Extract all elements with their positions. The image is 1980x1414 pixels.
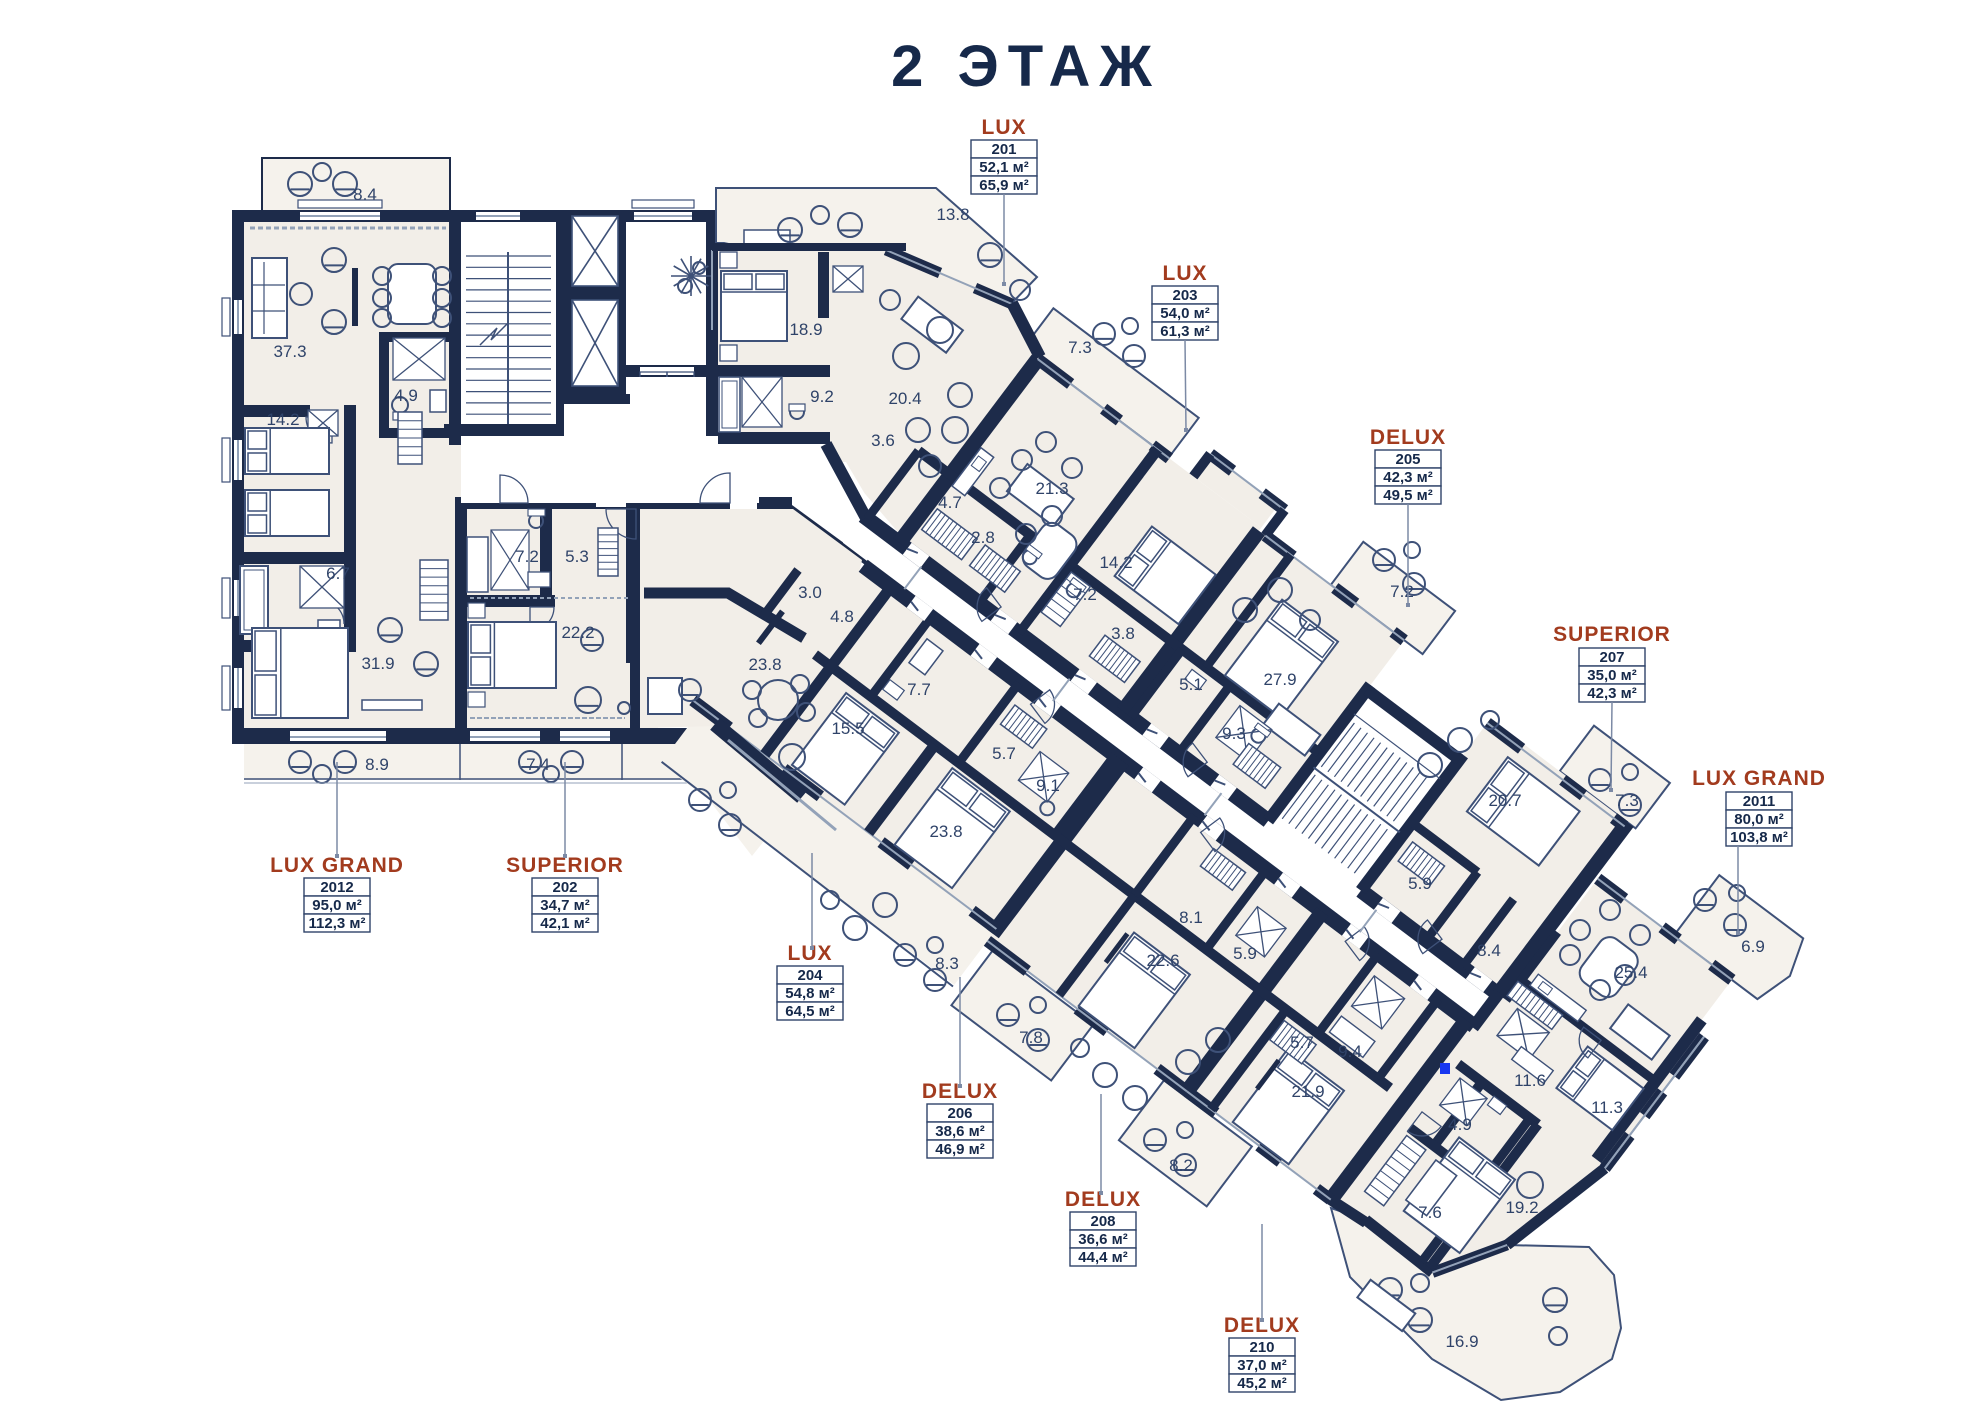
svg-text:DELUX: DELUX (1370, 426, 1446, 449)
svg-text:21.3: 21.3 (1035, 479, 1068, 498)
svg-text:7.8: 7.8 (1019, 1028, 1043, 1047)
svg-text:22.2: 22.2 (561, 623, 594, 642)
svg-text:19.2: 19.2 (1505, 1198, 1538, 1217)
svg-text:42,3 м²: 42,3 м² (1383, 469, 1432, 486)
svg-text:37.3: 37.3 (273, 342, 306, 361)
svg-text:6.7: 6.7 (326, 564, 350, 583)
svg-text:103,8 м²: 103,8 м² (1730, 829, 1788, 846)
svg-text:20.7: 20.7 (1488, 791, 1521, 810)
svg-text:8.9: 8.9 (365, 755, 389, 774)
svg-text:44,4 м²: 44,4 м² (1078, 1249, 1127, 1266)
svg-text:11.3: 11.3 (1591, 1098, 1623, 1117)
svg-text:16.9: 16.9 (1445, 1332, 1478, 1351)
svg-text:201: 201 (991, 141, 1016, 158)
svg-text:42,3 м²: 42,3 м² (1587, 685, 1636, 702)
svg-text:SUPERIOR: SUPERIOR (1553, 623, 1671, 646)
svg-text:23.8: 23.8 (929, 822, 962, 841)
svg-text:31.9: 31.9 (361, 654, 394, 673)
svg-text:11.6: 11.6 (1514, 1071, 1546, 1090)
svg-text:7.4: 7.4 (526, 755, 550, 774)
svg-text:3.0: 3.0 (798, 583, 822, 602)
svg-text:210: 210 (1249, 1339, 1274, 1356)
svg-text:5.3: 5.3 (565, 547, 589, 566)
svg-text:2.8: 2.8 (971, 528, 995, 547)
svg-text:208: 208 (1090, 1213, 1115, 1230)
svg-text:25.4: 25.4 (1614, 963, 1647, 982)
svg-text:9.2: 9.2 (810, 387, 834, 406)
svg-text:4.9: 4.9 (1448, 1115, 1472, 1134)
svg-text:27.9: 27.9 (1263, 670, 1296, 689)
svg-text:7.3: 7.3 (1068, 338, 1092, 357)
svg-text:7.2: 7.2 (515, 547, 539, 566)
svg-text:18.9: 18.9 (789, 320, 822, 339)
svg-text:20.4: 20.4 (888, 389, 921, 408)
svg-text:5.1: 5.1 (1179, 675, 1203, 694)
svg-text:38,6 м²: 38,6 м² (935, 1123, 984, 1140)
svg-text:205: 205 (1395, 451, 1420, 468)
svg-text:37,0 м²: 37,0 м² (1237, 1357, 1286, 1374)
svg-text:9.4: 9.4 (1338, 1042, 1362, 1061)
svg-text:7.3: 7.3 (1615, 791, 1639, 810)
svg-text:14.2: 14.2 (266, 410, 299, 429)
svg-text:5.7: 5.7 (992, 744, 1016, 763)
svg-text:202: 202 (552, 879, 577, 896)
svg-text:203: 203 (1172, 287, 1197, 304)
svg-text:9.3: 9.3 (1222, 724, 1246, 743)
svg-text:4.7: 4.7 (938, 493, 962, 512)
svg-text:42,1 м²: 42,1 м² (540, 915, 589, 932)
svg-text:5.9: 5.9 (1233, 944, 1257, 963)
svg-text:2012: 2012 (320, 879, 353, 896)
svg-text:65,9 м²: 65,9 м² (979, 177, 1028, 194)
svg-text:LUX: LUX (788, 942, 833, 965)
svg-text:61,3 м²: 61,3 м² (1160, 323, 1209, 340)
svg-text:LUX: LUX (1163, 262, 1208, 285)
svg-text:7.2: 7.2 (1073, 585, 1097, 604)
svg-text:8.3: 8.3 (935, 954, 959, 973)
svg-text:112,3 м²: 112,3 м² (309, 915, 366, 932)
svg-text:3.6: 3.6 (871, 431, 895, 450)
svg-text:5.9: 5.9 (1408, 874, 1432, 893)
svg-text:52,1 м²: 52,1 м² (979, 159, 1028, 176)
svg-text:8.1: 8.1 (1179, 908, 1203, 927)
svg-text:21.9: 21.9 (1291, 1082, 1324, 1101)
svg-text:9.1: 9.1 (1036, 776, 1060, 795)
svg-text:54,0 м²: 54,0 м² (1160, 305, 1209, 322)
svg-text:7.7: 7.7 (907, 680, 931, 699)
svg-text:36,6 м²: 36,6 м² (1078, 1231, 1127, 1248)
svg-text:7.6: 7.6 (1418, 1203, 1442, 1222)
svg-text:13.8: 13.8 (936, 205, 969, 224)
svg-text:15.5: 15.5 (831, 719, 864, 738)
svg-text:4.9: 4.9 (394, 386, 418, 405)
svg-text:95,0 м²: 95,0 м² (312, 897, 361, 914)
svg-text:8.4: 8.4 (1477, 941, 1501, 960)
svg-text:2 ЭТАЖ: 2 ЭТАЖ (891, 34, 1161, 99)
svg-text:35,0 м²: 35,0 м² (1587, 667, 1636, 684)
svg-text:80,0 м²: 80,0 м² (1734, 811, 1783, 828)
svg-text:4.8: 4.8 (830, 607, 854, 626)
svg-text:7.2: 7.2 (1390, 582, 1414, 601)
svg-text:2011: 2011 (1743, 793, 1776, 810)
svg-text:23.8: 23.8 (748, 655, 781, 674)
svg-text:54,8 м²: 54,8 м² (785, 985, 834, 1002)
svg-text:8.2: 8.2 (1169, 1156, 1193, 1175)
svg-text:204: 204 (797, 967, 823, 984)
svg-text:22.6: 22.6 (1146, 951, 1179, 970)
svg-text:45,2 м²: 45,2 м² (1237, 1375, 1286, 1392)
svg-text:206: 206 (947, 1105, 972, 1122)
svg-text:64,5 м²: 64,5 м² (785, 1003, 834, 1020)
svg-text:14.2: 14.2 (1099, 553, 1132, 572)
svg-text:34,7 м²: 34,7 м² (540, 897, 589, 914)
svg-text:46,9 м²: 46,9 м² (935, 1141, 984, 1158)
svg-text:6.9: 6.9 (1741, 937, 1765, 956)
svg-text:3.8: 3.8 (1111, 624, 1135, 643)
svg-text:49,5 м²: 49,5 м² (1383, 487, 1432, 504)
svg-text:LUX GRAND: LUX GRAND (1692, 767, 1826, 790)
svg-text:5.7: 5.7 (1290, 1033, 1314, 1052)
svg-text:207: 207 (1599, 649, 1624, 666)
svg-text:LUX: LUX (982, 116, 1027, 139)
